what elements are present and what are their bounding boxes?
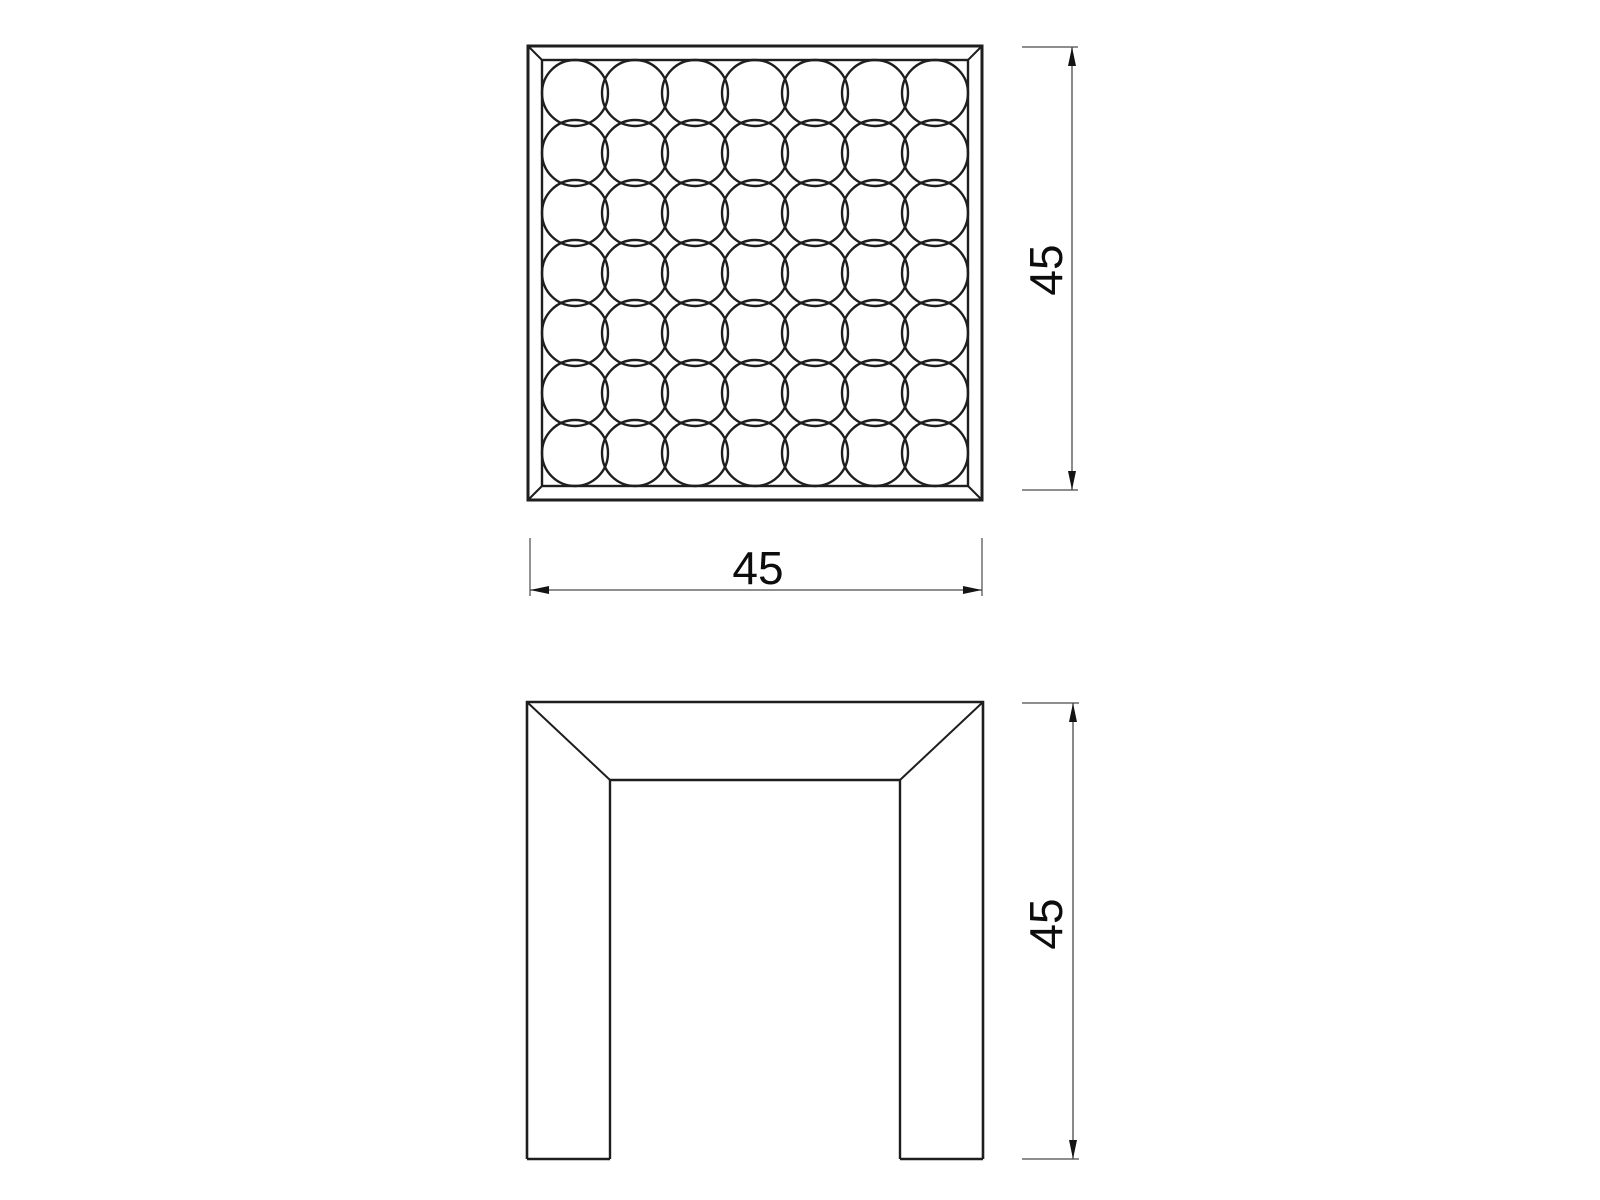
mosaic-circle xyxy=(782,300,848,366)
frame-outer-edge xyxy=(528,46,982,500)
dimension-label-top-width: 45 xyxy=(732,542,783,594)
arrow-down-icon xyxy=(1068,471,1076,490)
mosaic-circle xyxy=(662,120,728,186)
mosaic-circle xyxy=(842,60,908,126)
miter-joint-bottom-left xyxy=(528,486,542,500)
front-view xyxy=(527,702,983,1159)
miter-joint-bottom-right xyxy=(968,486,982,500)
mosaic-circle xyxy=(662,60,728,126)
mosaic-circle xyxy=(722,180,788,246)
miter-joint-top-left xyxy=(528,46,542,60)
mosaic-circle xyxy=(602,120,668,186)
mosaic-circle xyxy=(782,180,848,246)
mosaic-circle xyxy=(662,180,728,246)
mosaic-circle xyxy=(722,60,788,126)
mosaic-circle xyxy=(782,360,848,426)
mosaic-circle xyxy=(602,360,668,426)
arrow-up-icon xyxy=(1068,47,1076,66)
circle-grid xyxy=(542,60,968,486)
arrow-left-icon xyxy=(530,586,549,594)
mosaic-circle xyxy=(782,60,848,126)
dimension-top-view-height: 45 xyxy=(1020,47,1078,490)
mosaic-circle xyxy=(662,300,728,366)
front-outer-outline xyxy=(527,702,983,1159)
frame-inner-edge xyxy=(542,60,968,486)
mosaic-circle xyxy=(782,120,848,186)
mosaic-circle xyxy=(662,420,728,486)
mosaic-circle xyxy=(902,240,968,306)
mosaic-circle xyxy=(842,360,908,426)
mosaic-circle xyxy=(542,420,608,486)
mosaic-circle xyxy=(722,360,788,426)
mosaic-circle xyxy=(902,180,968,246)
mosaic-circle xyxy=(722,240,788,306)
mosaic-circle xyxy=(602,420,668,486)
mosaic-circle xyxy=(902,420,968,486)
mosaic-circle xyxy=(662,360,728,426)
mosaic-circle xyxy=(662,240,728,306)
mosaic-circle xyxy=(722,300,788,366)
mosaic-circle xyxy=(842,240,908,306)
mosaic-circle xyxy=(902,300,968,366)
dimension-label-front-height: 45 xyxy=(1020,898,1072,949)
mosaic-circle xyxy=(602,240,668,306)
mosaic-circle xyxy=(902,120,968,186)
mosaic-circle xyxy=(842,300,908,366)
mosaic-circle xyxy=(902,60,968,126)
mosaic-circle xyxy=(722,120,788,186)
mosaic-circle xyxy=(542,240,608,306)
front-inner-outline xyxy=(610,780,900,1159)
top-view xyxy=(528,46,982,500)
drawing-canvas: 45 45 45 xyxy=(0,0,1600,1200)
arrow-up-icon xyxy=(1069,703,1077,722)
arrow-right-icon xyxy=(963,586,982,594)
miter-joint-front-left xyxy=(527,702,610,780)
mosaic-circle xyxy=(782,240,848,306)
mosaic-circle xyxy=(542,180,608,246)
mosaic-circle xyxy=(722,420,788,486)
mosaic-circle xyxy=(602,300,668,366)
mosaic-circle xyxy=(542,120,608,186)
arrow-down-icon xyxy=(1069,1140,1077,1159)
mosaic-circle xyxy=(782,420,848,486)
mosaic-circle xyxy=(842,420,908,486)
top-view-frame xyxy=(528,46,982,500)
dimension-top-view-width: 45 xyxy=(530,538,982,596)
mosaic-circle xyxy=(602,180,668,246)
miter-joint-front-right xyxy=(900,702,983,780)
mosaic-circle xyxy=(542,360,608,426)
mosaic-circle xyxy=(602,60,668,126)
mosaic-circle xyxy=(902,360,968,426)
dimension-front-view-height: 45 xyxy=(1020,703,1079,1159)
drawing-sheet: 45 45 45 xyxy=(0,0,1600,1200)
mosaic-circle xyxy=(542,60,608,126)
miter-joint-top-right xyxy=(968,46,982,60)
mosaic-circle xyxy=(842,180,908,246)
mosaic-circle xyxy=(842,120,908,186)
mosaic-circle xyxy=(542,300,608,366)
dimension-label-top-height: 45 xyxy=(1020,244,1072,295)
